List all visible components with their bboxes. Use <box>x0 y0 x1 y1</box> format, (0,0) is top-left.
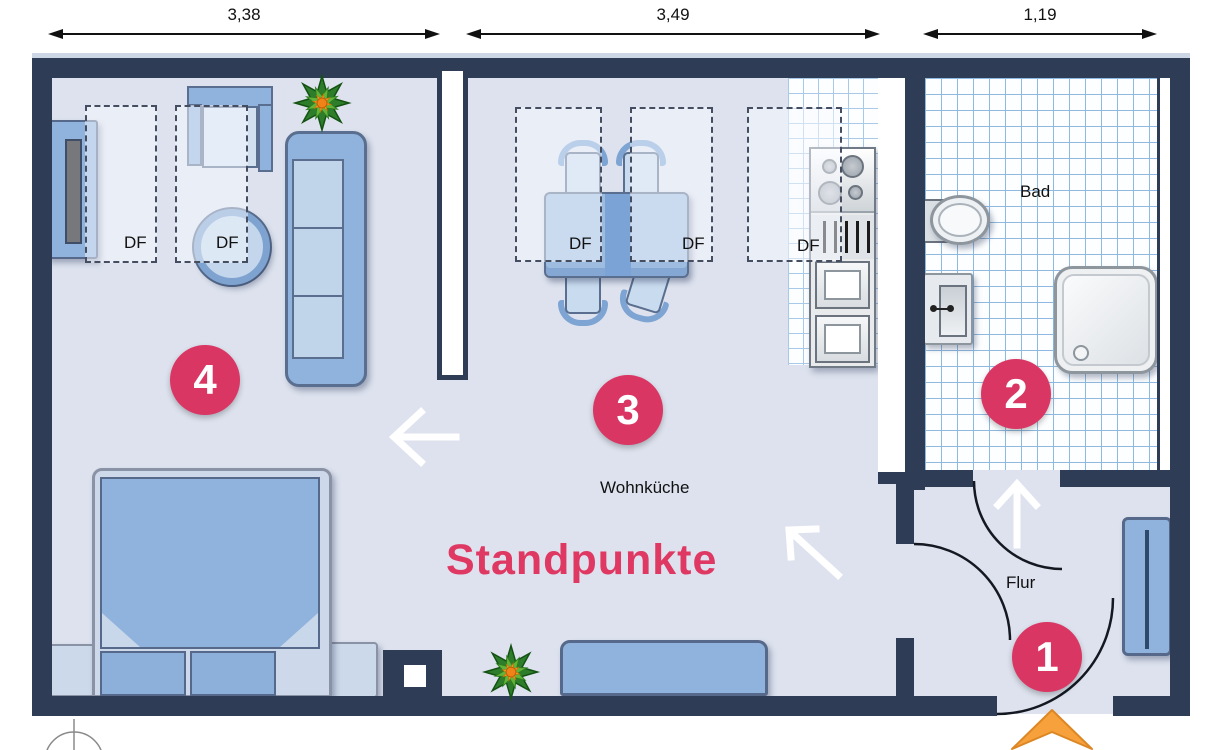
view-arrow-diagonal-icon <box>789 529 838 575</box>
entrance-arrow-icon <box>1012 710 1092 749</box>
page-title: Standpunkte <box>446 536 717 585</box>
view-arrow-up-icon <box>998 484 1036 545</box>
room-label-living-kitchen: Wohnküche <box>600 478 689 498</box>
viewpoint-marker-2: 2 <box>981 359 1051 429</box>
viewpoint-marker-1: 1 <box>1012 622 1082 692</box>
view-arrow-left-icon <box>394 412 456 462</box>
floor-plan: 3,38 3,49 1,19 <box>0 0 1224 750</box>
viewpoint-marker-4: 4 <box>170 345 240 415</box>
plant-icon <box>485 646 538 699</box>
room-label-hallway: Flur <box>1006 573 1035 593</box>
door-swing-arc <box>914 544 1010 640</box>
room-label-bath: Bad <box>1020 182 1050 202</box>
plant-icon <box>295 76 349 130</box>
viewpoint-marker-3: 3 <box>593 375 663 445</box>
north-compass-icon <box>45 719 103 750</box>
